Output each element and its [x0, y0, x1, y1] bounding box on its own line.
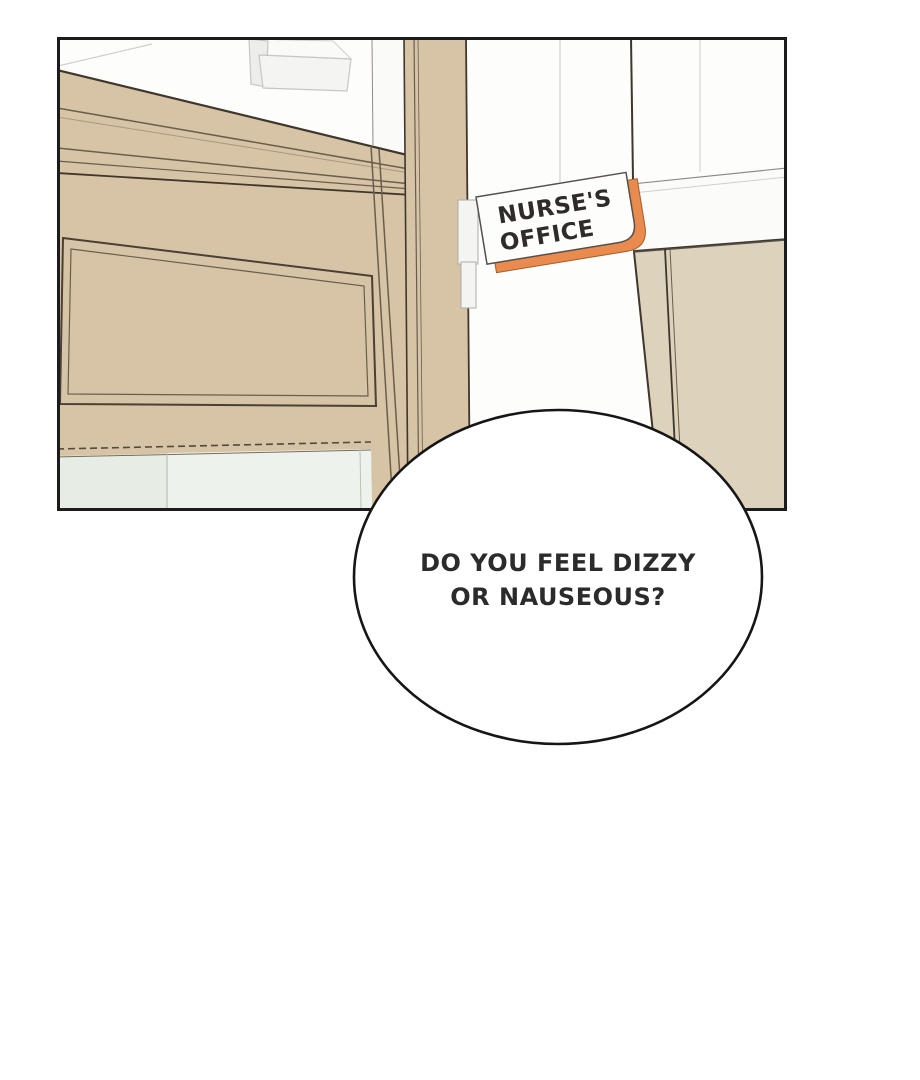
sign-bracket	[458, 200, 478, 264]
bubble-text-line2: OR NAUSEOUS?	[450, 583, 665, 611]
light-fixture	[249, 39, 351, 91]
speech-bubble: DO YOU FEEL DIZZY OR NAUSEOUS?	[354, 410, 762, 744]
comic-panel: NURSE'S OFFICE	[57, 37, 787, 510]
bubble-text-line1: DO YOU FEEL DIZZY	[420, 549, 696, 577]
door-frame-gap	[372, 40, 404, 153]
comic-page: NURSE'S OFFICE DO YOU FEEL DIZZY OR NAUS…	[0, 0, 920, 1080]
bubble-ellipse	[354, 410, 762, 744]
